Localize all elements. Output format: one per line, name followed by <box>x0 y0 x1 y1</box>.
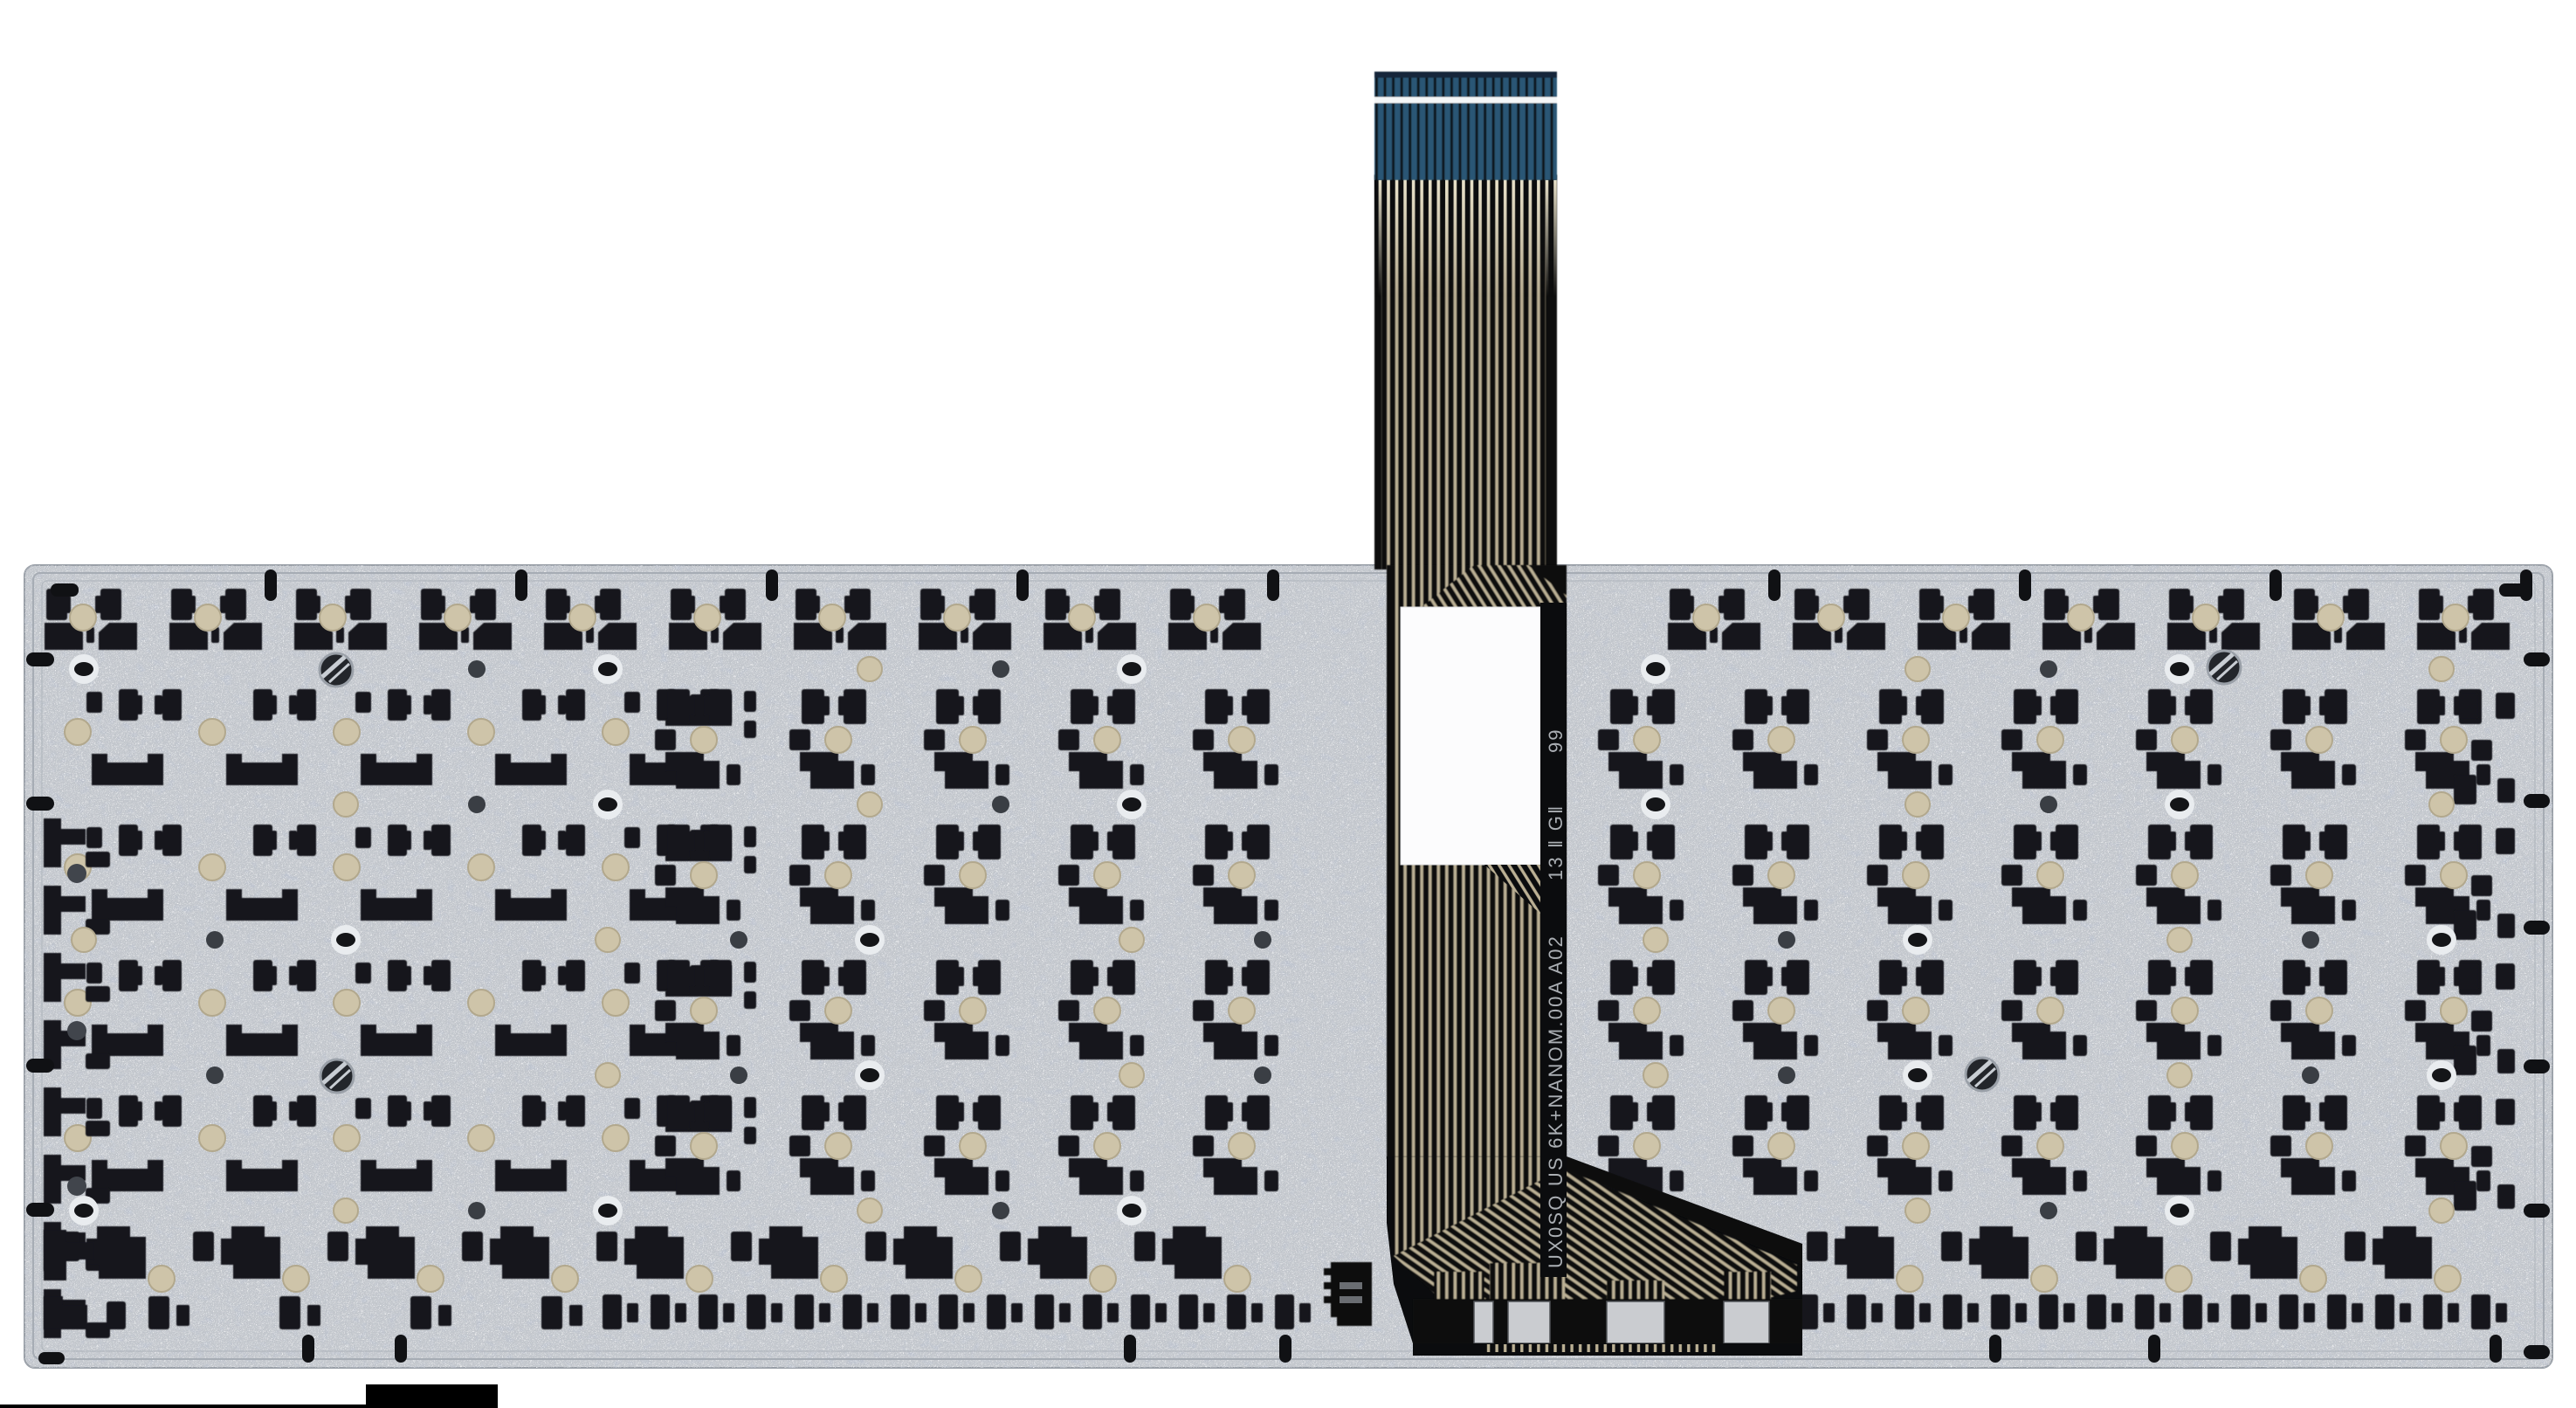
svg-text:99: 99 <box>1545 728 1567 753</box>
svg-text:UX0SQ US 6K+NANOM.00A A02: UX0SQ US 6K+NANOM.00A A02 <box>1545 935 1567 1268</box>
svg-text:13 ‖ G‖: 13 ‖ G‖ <box>1545 804 1567 880</box>
